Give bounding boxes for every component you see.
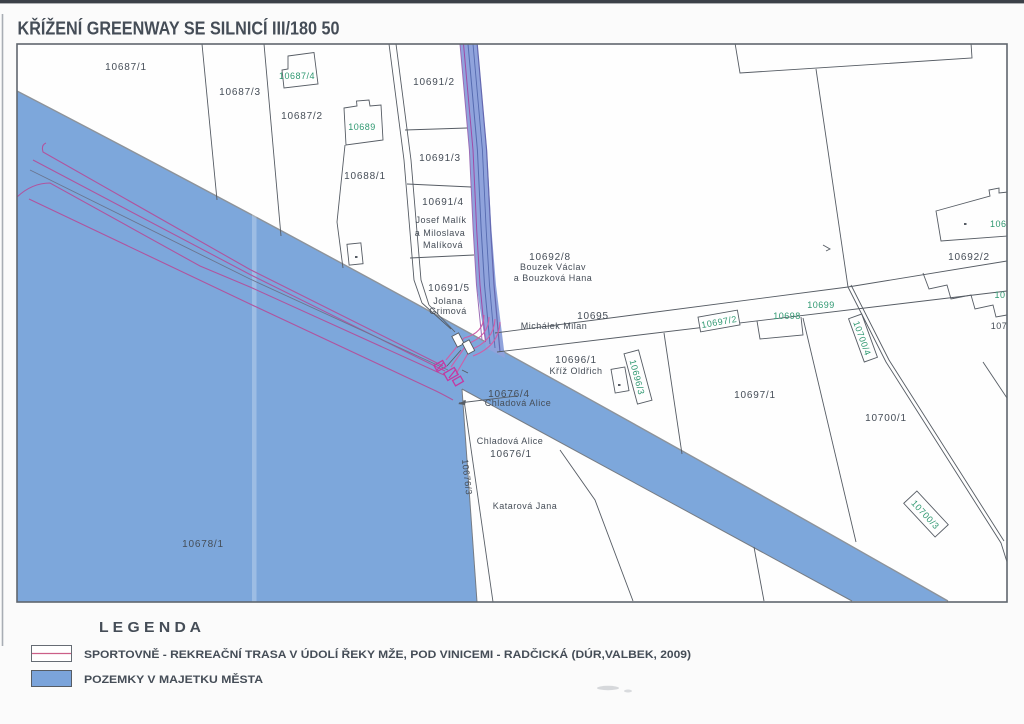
svg-text:Chladová Alice: Chladová Alice: [477, 436, 544, 446]
svg-text:SPORTOVNĚ - REKREAČNÍ TRASA V: SPORTOVNĚ - REKREAČNÍ TRASA V ÚDOLÍ ŘEKY…: [84, 648, 691, 661]
svg-text:POZEMKY V MAJETKU MĚSTA: POZEMKY V MAJETKU MĚSTA: [84, 673, 263, 686]
svg-text:10687/2: 10687/2: [281, 111, 323, 122]
svg-text:Bouzek Václav: Bouzek Václav: [520, 262, 586, 272]
svg-text:Katarová Jana: Katarová Jana: [493, 501, 558, 511]
svg-text:10699: 10699: [807, 300, 835, 310]
svg-text:10691/3: 10691/3: [419, 153, 461, 164]
svg-text:Michálek Milan: Michálek Milan: [521, 321, 588, 331]
svg-text:a Bouzková Hana: a Bouzková Hana: [514, 273, 593, 283]
svg-text:10691/2: 10691/2: [413, 77, 455, 88]
svg-text:10698: 10698: [773, 311, 801, 321]
svg-text:10696/1: 10696/1: [555, 355, 597, 366]
svg-text:10687/1: 10687/1: [105, 62, 147, 73]
svg-text:L E G E N D A: L E G E N D A: [99, 620, 202, 636]
svg-text:107: 107: [991, 321, 1008, 331]
svg-text:10676/1: 10676/1: [490, 449, 532, 460]
svg-text:Josef Malík: Josef Malík: [415, 215, 466, 225]
svg-text:Jolana: Jolana: [433, 296, 463, 306]
svg-text:10692/2: 10692/2: [948, 252, 990, 263]
svg-text:Kříž Oldřich: Kříž Oldřich: [549, 366, 602, 376]
svg-text:10697/1: 10697/1: [734, 390, 776, 401]
svg-text:10691/4: 10691/4: [422, 197, 464, 208]
svg-text:Chladová Alice: Chladová Alice: [485, 398, 552, 408]
svg-text:10688/1: 10688/1: [344, 171, 386, 182]
svg-text:Malíková: Malíková: [423, 240, 463, 250]
svg-text:10700/1: 10700/1: [865, 413, 907, 424]
svg-text:10: 10: [994, 290, 1005, 300]
svg-text:KŘÍŽENÍ GREENWAY SE SILNICÍ II: KŘÍŽENÍ GREENWAY SE SILNICÍ III/180 50: [18, 18, 340, 39]
svg-text:10691/5: 10691/5: [428, 283, 470, 294]
svg-text:10687/3: 10687/3: [219, 87, 261, 98]
svg-text:Grimová: Grimová: [429, 306, 467, 316]
svg-text:10689: 10689: [348, 122, 376, 132]
svg-text:10687/4: 10687/4: [279, 71, 315, 81]
svg-text:a Miloslava: a Miloslava: [415, 228, 466, 238]
svg-text:10678/1: 10678/1: [182, 539, 224, 550]
